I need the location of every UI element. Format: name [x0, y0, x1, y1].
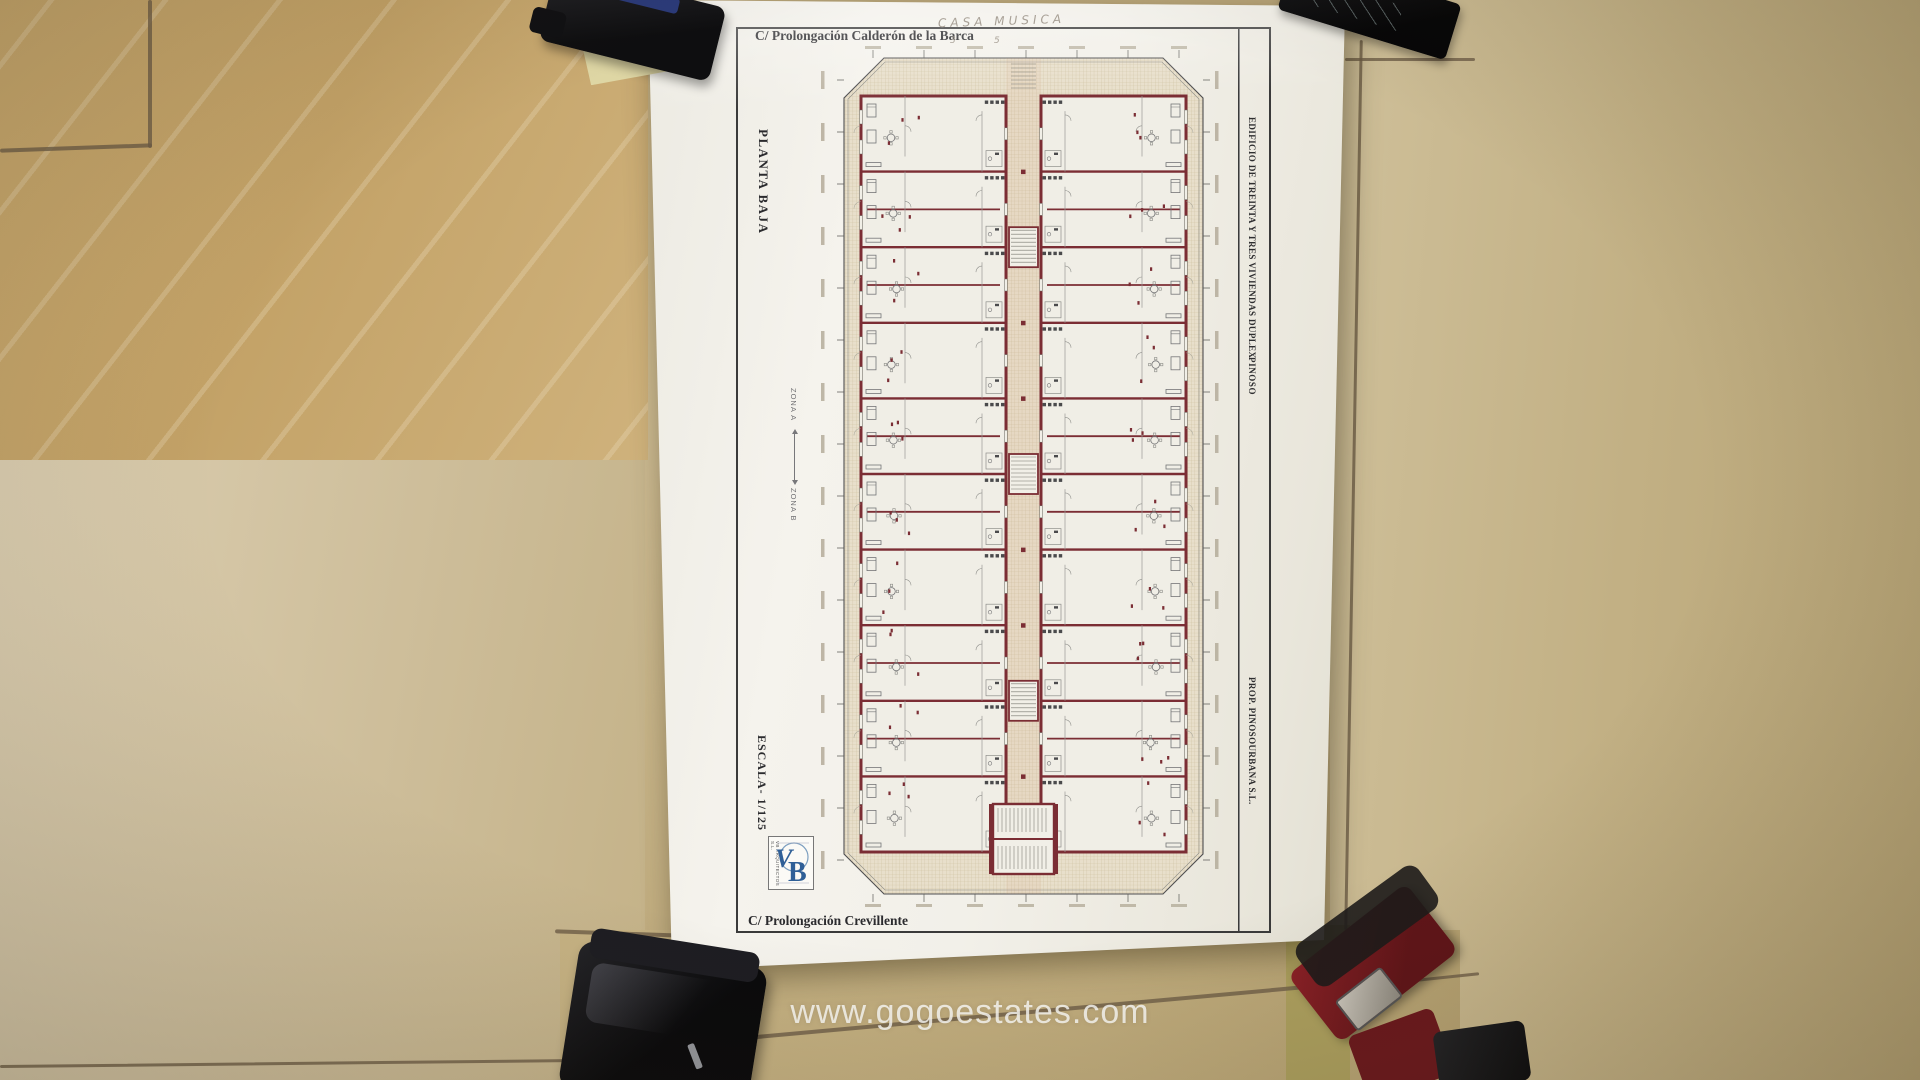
street-label-bottom: C/ Prolongación Crevillente: [748, 913, 908, 929]
zone-arrow: [794, 434, 795, 480]
red-stapler: [1292, 902, 1442, 1080]
handwritten-mark: 3: [950, 36, 956, 46]
hole-punch-lever: [528, 6, 567, 39]
floor-tile-left-bottom: [0, 460, 645, 1080]
grout-line: [1345, 58, 1475, 61]
project-title: EDIFICIO DE TREINTA Y TRES VIVIENDAS DUP…: [1247, 117, 1257, 358]
plan-sheet-wrapper: EDIFICIO DE TREINTA Y TRES VIVIENDAS DUP…: [638, 0, 1350, 982]
scale-label: ESCALA- 1/125: [754, 735, 769, 831]
drawing-border-frame: EDIFICIO DE TREINTA Y TRES VIVIENDAS DUP…: [736, 27, 1271, 933]
handwritten-mark: 5: [994, 36, 1000, 46]
hole-punch-blue-part: [609, 0, 681, 14]
handwritten-note: CASA MUSICA: [938, 12, 1066, 30]
vb-monogram-b: B: [788, 857, 807, 888]
zone-b-label: ZONA B: [789, 488, 798, 522]
plan-sheet: EDIFICIO DE TREINTA Y TRES VIVIENDAS DUP…: [638, 0, 1350, 982]
floor-tile-left: [0, 0, 648, 460]
grout-line: [0, 143, 152, 152]
zone-a-label: ZONA A: [789, 388, 798, 421]
vb-logo-caption: VB ARQUITECTOS S.L.: [770, 841, 780, 889]
title-block-strip: EDIFICIO DE TREINTA Y TRES VIVIENDAS DUP…: [1238, 29, 1271, 931]
vb-logo-icon: VB ARQUITECTOS S.L. V B: [768, 836, 814, 890]
smartphone: [557, 914, 778, 1080]
floor-label: PLANTA BAJA: [755, 129, 771, 234]
developer-name: PROP. PINOSOURBANA S.L.: [1247, 677, 1257, 805]
floor-plan-drawing: [813, 46, 1227, 908]
photo-scene: { "scene": { "watermark": "www.gogoestat…: [0, 0, 1920, 1080]
floor-tile-left-veins: [0, 0, 648, 460]
vb-monogram-v: V: [775, 844, 795, 873]
project-location: PINOSO: [1247, 357, 1257, 395]
grout-line: [0, 1059, 580, 1068]
grout-line: [148, 0, 152, 148]
watermark-text: www.gogoestates.com: [770, 993, 1170, 1032]
street-label-top: C/ Prolongación Calderón de la Barca: [755, 28, 974, 44]
corner-object: [1432, 1020, 1531, 1080]
